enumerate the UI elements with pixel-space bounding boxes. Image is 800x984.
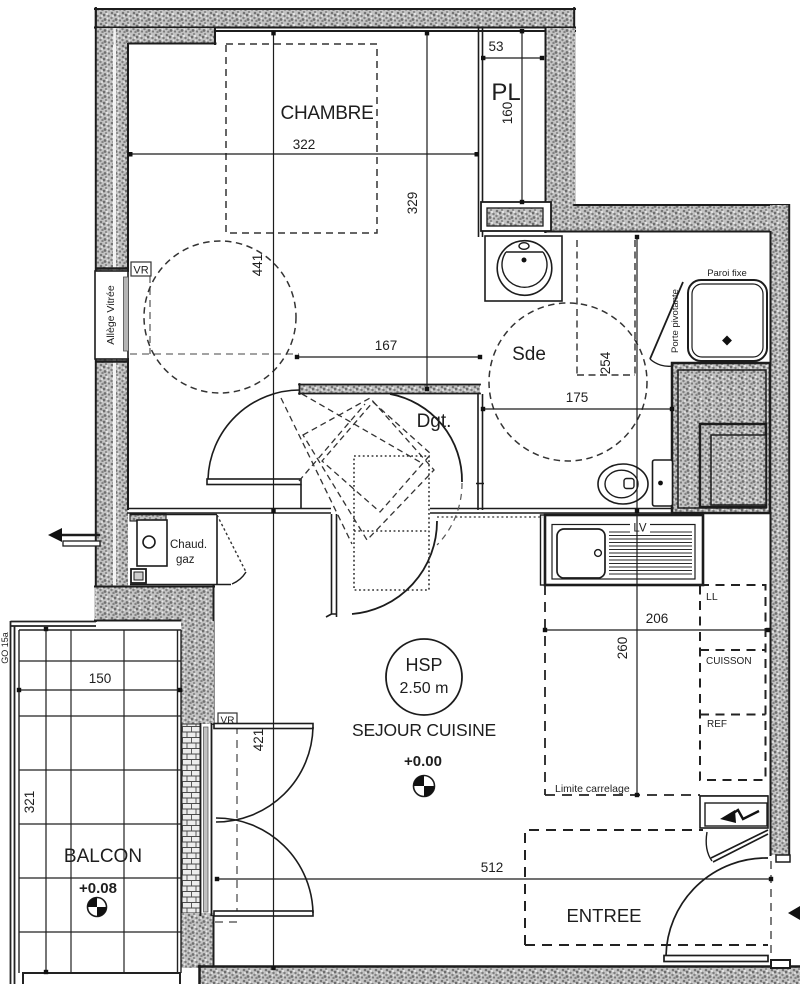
svg-text:LV: LV	[633, 523, 647, 535]
svg-text:Paroi fixe: Paroi fixe	[707, 268, 747, 279]
svg-text:PL: PL	[491, 79, 520, 106]
svg-text:441: 441	[250, 254, 265, 277]
svg-text:GO 15a: GO 15a	[0, 632, 10, 664]
svg-text:Dgt.: Dgt.	[417, 411, 452, 432]
svg-text:2.50 m: 2.50 m	[400, 680, 449, 697]
svg-text:SEJOUR CUISINE: SEJOUR CUISINE	[352, 720, 496, 740]
svg-text:Chaud.: Chaud.	[170, 539, 207, 551]
svg-text:BALCON: BALCON	[64, 846, 142, 867]
svg-text:+0.08: +0.08	[79, 880, 117, 897]
svg-text:254: 254	[598, 351, 613, 374]
svg-text:+0.00: +0.00	[404, 753, 442, 770]
svg-text:421: 421	[251, 729, 266, 752]
svg-text:322: 322	[293, 137, 316, 152]
svg-text:REF: REF	[707, 719, 727, 730]
svg-text:512: 512	[481, 860, 504, 875]
svg-text:321: 321	[22, 791, 37, 814]
svg-text:ENTREE: ENTREE	[566, 905, 641, 926]
svg-text:Allège Vitrée: Allège Vitrée	[105, 285, 117, 345]
svg-text:VR: VR	[133, 265, 148, 277]
svg-text:150: 150	[89, 671, 112, 686]
svg-text:260: 260	[615, 637, 630, 660]
svg-text:gaz: gaz	[176, 554, 195, 566]
svg-text:329: 329	[405, 192, 420, 215]
svg-text:Porte pivotante: Porte pivotante	[670, 289, 681, 353]
svg-text:175: 175	[566, 390, 589, 405]
svg-text:206: 206	[646, 611, 669, 626]
svg-text:Limite carrelage: Limite carrelage	[555, 783, 630, 795]
svg-text:Sde: Sde	[512, 344, 546, 365]
svg-text:167: 167	[375, 338, 398, 353]
svg-text:CUISSON: CUISSON	[706, 656, 752, 667]
svg-text:CHAMBRE: CHAMBRE	[281, 103, 374, 124]
svg-text:53: 53	[488, 39, 503, 54]
svg-text:LL: LL	[706, 591, 718, 603]
svg-text:HSP: HSP	[405, 655, 442, 675]
